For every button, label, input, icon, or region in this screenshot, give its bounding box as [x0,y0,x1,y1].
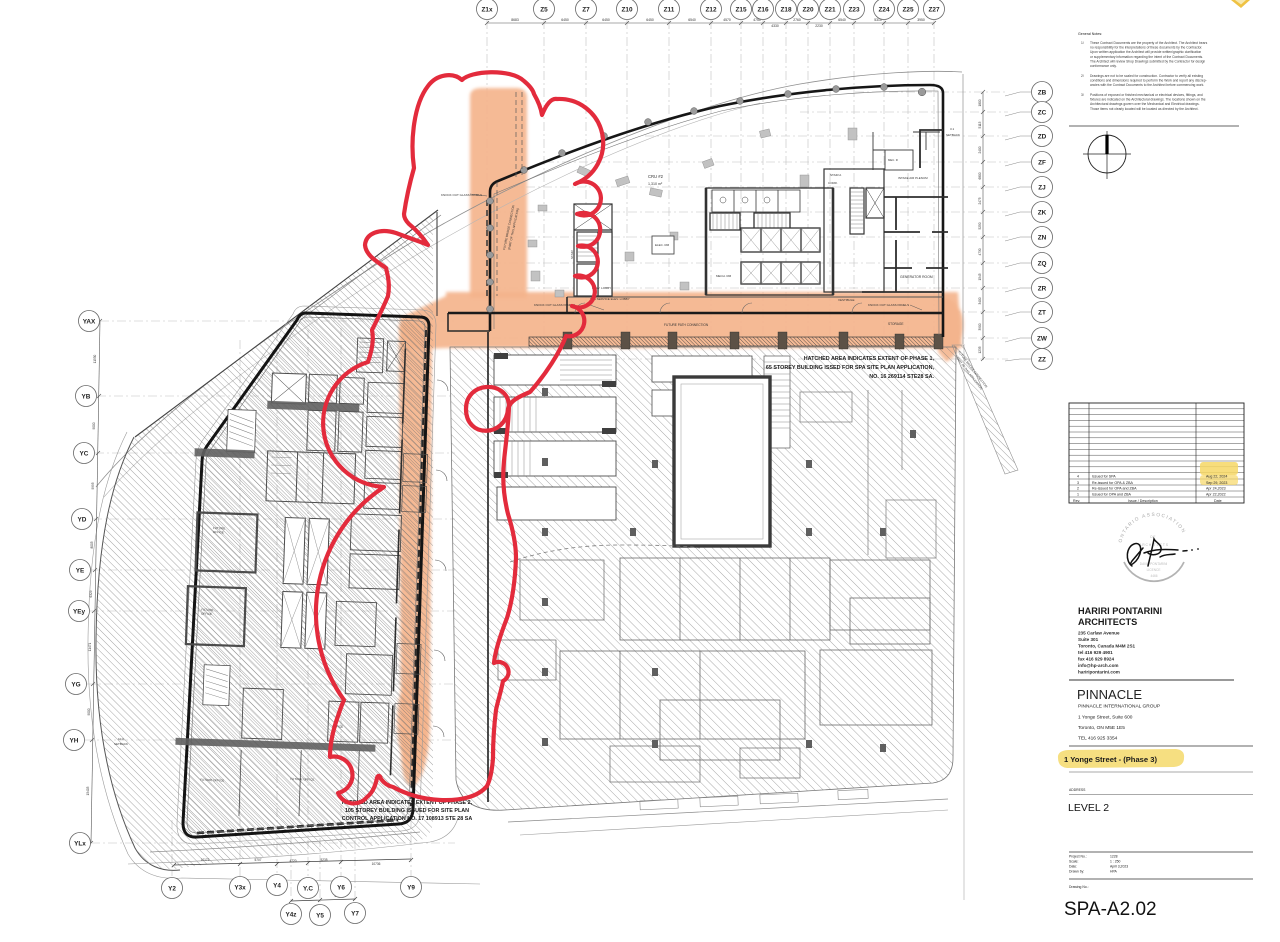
svg-text:Positions of exposed or finish: Positions of exposed or finished mechani… [1090,93,1203,97]
svg-text:6540: 6540 [688,18,696,22]
svg-text:8005: 8005 [90,541,94,548]
svg-text:4: 4 [1077,475,1079,479]
svg-text:4720: 4720 [289,859,296,863]
svg-text:ZR: ZR [1038,286,1047,293]
svg-text:ZN: ZN [1038,235,1047,242]
svg-text:Suite 301: Suite 301 [1078,637,1099,642]
svg-text:Z15: Z15 [735,7,746,14]
svg-text:Z7: Z7 [582,7,590,14]
svg-text:Z21: Z21 [824,7,835,14]
svg-text:fixtures are indicated on the: fixtures are indicated on the Architectu… [1090,98,1206,102]
svg-text:Toronto, Canada M4M 2S1: Toronto, Canada M4M 2S1 [1078,644,1136,649]
svg-text:Z10: Z10 [621,7,632,14]
svg-text:April 3,2023: April 3,2023 [1110,865,1128,869]
svg-text:or supplementary information r: or supplementary information regarding t… [1090,55,1203,59]
svg-text:YB: YB [82,394,91,401]
svg-text:8683: 8683 [511,18,519,22]
svg-text:Z24: Z24 [878,7,889,14]
svg-text:SETBACK: SETBACK [946,133,960,137]
svg-text:3950: 3950 [917,18,925,22]
svg-text:OFFICE: OFFICE [201,612,212,616]
svg-text:Z1x: Z1x [481,7,492,14]
svg-text:Issue / Description: Issue / Description [1128,499,1158,503]
svg-text:6450: 6450 [561,18,569,22]
svg-text:11530: 11530 [93,354,97,363]
svg-text:3400: 3400 [978,297,982,304]
svg-text:Issued for SPA: Issued for SPA [1092,475,1116,479]
svg-text:Those items not clearly locate: Those items not clearly located will be … [1090,107,1199,111]
svg-text:VESTIBULE: VESTIBULE [838,298,855,302]
svg-text:KNOCK OUT GLASS PANELS: KNOCK OUT GLASS PANELS [868,303,909,307]
svg-text:235 Carlaw Avenue: 235 Carlaw Avenue [1078,631,1120,636]
svg-text:2475: 2475 [978,197,982,204]
svg-text:TEL 416 925 3354: TEL 416 925 3354 [1078,736,1118,742]
svg-text:ZW: ZW [1037,336,1048,343]
svg-text:ZK: ZK [1038,210,1047,217]
svg-text:KNOCK OUT GLASS PANELS: KNOCK OUT GLASS PANELS [441,193,482,197]
svg-text:OFFICE: OFFICE [213,530,224,534]
svg-text:1,310 m²: 1,310 m² [648,182,663,186]
svg-text:Y6: Y6 [337,885,345,892]
svg-text:ZZ: ZZ [1038,357,1046,364]
svg-text:Date: Date [1214,499,1222,503]
svg-text:ZJ: ZJ [1038,185,1046,192]
svg-text:Y3x: Y3x [234,885,246,892]
svg-text:3900: 3900 [978,323,982,330]
svg-text:1 : 250: 1 : 250 [1110,860,1120,864]
svg-text:65 STOREY BUILDING ISSED FOR S: 65 STOREY BUILDING ISSED FOR SPA SITE PL… [766,365,935,371]
svg-text:2760: 2760 [793,18,801,22]
svg-text:3.1: 3.1 [950,127,955,131]
svg-text:YG: YG [71,682,80,689]
svg-text:INTAKE AIR PLENUM: INTAKE AIR PLENUM [898,176,928,180]
svg-text:HATCHED AREA INDICATES EXTENT: HATCHED AREA INDICATES EXTENT OF PHASE 1… [804,356,935,362]
svg-text:ELEC. RM: ELEC. RM [655,243,670,247]
svg-text:NO. 16 269114 STE28 SA.: NO. 16 269114 STE28 SA. [869,374,934,380]
svg-text:1/: 1/ [1081,41,1084,45]
svg-text:KNOCK OUT GLASS PANELS: KNOCK OUT GLASS PANELS [534,303,575,307]
svg-text:FUTURE OFFICE: FUTURE OFFICE [290,777,314,782]
svg-text:PINNACLE INTERNATIONAL GROUP: PINNACLE INTERNATIONAL GROUP [1078,704,1160,710]
svg-text:2400: 2400 [978,146,982,153]
svg-text:Upon written application the A: Upon written application the Architect w… [1090,50,1201,54]
svg-text:11471: 11471 [88,642,92,651]
svg-text:CRU #2: CRU #2 [648,174,664,179]
svg-text:ZF: ZF [1038,160,1046,167]
svg-text:Z25: Z25 [902,7,913,14]
svg-text:1545: 1545 [978,273,982,280]
svg-text:1800: 1800 [978,99,982,106]
svg-text:Re-issued for OPA and ZBA: Re-issued for OPA and ZBA [1092,487,1137,491]
svg-text:4730: 4730 [978,248,982,255]
svg-text:9995: 9995 [91,482,95,489]
svg-text:FUTURE OFFICE: FUTURE OFFICE [200,778,224,783]
svg-text:3/: 3/ [1081,93,1084,97]
svg-text:Z16: Z16 [757,7,768,14]
svg-text:Z18: Z18 [780,7,791,14]
svg-text:ZD: ZD [1038,134,1047,141]
svg-text:YC: YC [80,451,89,458]
svg-text:STAIR A: STAIR A [830,173,841,177]
svg-text:YH: YH [70,738,79,745]
svg-text:Z5: Z5 [540,7,548,14]
svg-text:YEy: YEy [73,609,86,616]
svg-text:1 Yonge Street, Suite 600: 1 Yonge Street, Suite 600 [1078,715,1133,721]
svg-text:FUTURE PATH CONNECTION: FUTURE PATH CONNECTION [664,323,709,327]
svg-text:hariripontarini.com: hariripontarini.com [1078,670,1120,675]
svg-text:conditions and dimensions requ: conditions and dimensions required to pe… [1090,79,1207,83]
svg-text:Y.C: Y.C [303,886,313,893]
svg-text:Re-issued for OPA & ZBA: Re-issued for OPA & ZBA [1092,481,1133,485]
svg-text:tel 416 929 4901: tel 416 929 4901 [1078,650,1113,655]
svg-text:Apr 22,2022: Apr 22,2022 [1206,493,1226,497]
svg-text:Z23: Z23 [848,7,859,14]
svg-text:Drawn by:: Drawn by: [1069,870,1084,874]
svg-text:MECH. RM: MECH. RM [716,274,732,278]
svg-text:HPA: HPA [1110,870,1117,874]
svg-text:Y5: Y5 [316,913,324,920]
svg-text:Issued for OPA and ZBA: Issued for OPA and ZBA [1092,493,1131,497]
svg-text:ZB: ZB [1038,90,1047,97]
svg-text:YAX: YAX [83,319,96,326]
svg-text:conformance only.: conformance only. [1090,64,1117,68]
svg-text:5235: 5235 [320,858,327,862]
svg-text:5250: 5250 [978,222,982,229]
svg-text:Drawing No.:: Drawing No.: [1069,885,1089,889]
svg-text:YE: YE [76,568,85,575]
svg-text:6450: 6450 [602,18,610,22]
svg-text:STORAGE: STORAGE [888,322,904,326]
svg-text:These Contract Documents are t: These Contract Documents are the propert… [1090,41,1208,45]
svg-text:Rev.: Rev. [1073,499,1080,503]
svg-text:ancies with the Contract Docum: ancies with the Contract Documents to th… [1090,83,1204,87]
svg-text:ARCHITECTS: ARCHITECTS [1078,617,1137,627]
svg-text:10173: 10173 [201,858,210,862]
svg-text:2: 2 [1077,487,1079,491]
svg-text:ZC: ZC [1038,110,1047,117]
svg-text:ZQ: ZQ [1038,261,1047,268]
svg-text:Z27: Z27 [928,7,939,14]
svg-text:HARIRI PONTARINI: HARIRI PONTARINI [1078,606,1162,616]
svg-text:Z12: Z12 [705,7,716,14]
svg-text:3: 3 [1077,481,1079,485]
svg-text:General Notes:: General Notes: [1078,32,1102,36]
svg-text:9000: 9000 [92,422,96,429]
svg-text:2230: 2230 [815,24,823,28]
svg-text:Architectural drawings govern: Architectural drawings govern over the M… [1090,102,1200,106]
svg-text:105 STOREY BUILDING ISSUED FOR: 105 STOREY BUILDING ISSUED FOR SITE PLAN [345,808,469,814]
svg-text:Y4z: Y4z [285,912,296,919]
svg-text:Drawings are not to be scaled: Drawings are not to be scaled for constr… [1090,74,1203,78]
svg-text:MEC. R: MEC. R [888,158,898,162]
svg-text:Toronto, ON M5E 1E5: Toronto, ON M5E 1E5 [1078,725,1125,731]
svg-text:10.0: 10.0 [118,737,124,741]
svg-text:9000: 9000 [87,708,91,715]
svg-text:6800: 6800 [978,172,982,179]
svg-text:1: 1 [1077,493,1079,497]
svg-text:Z11: Z11 [664,7,675,14]
svg-text:ADDRESS: ADDRESS [1069,788,1086,792]
svg-text:Z20: Z20 [802,7,813,14]
svg-text:fax 416 929 8924: fax 416 929 8924 [1078,657,1114,662]
svg-text:Y4: Y4 [273,883,281,890]
svg-text:Scale:: Scale: [1069,860,1078,864]
svg-text:4570: 4570 [723,18,731,22]
svg-text:CONTROL APPLICATION NO. 17 108: CONTROL APPLICATION NO. 17 108913 STE 28… [342,816,473,822]
svg-text:Sep 29, 2023: Sep 29, 2023 [1206,481,1227,485]
svg-text:4330: 4330 [771,24,779,28]
svg-text:info@hp-arch.com: info@hp-arch.com [1078,663,1118,668]
svg-text:CORR.: CORR. [828,181,838,185]
svg-text:LEVEL 2: LEVEL 2 [1068,802,1109,814]
svg-text:no responsibility for the inte: no responsibility for the interpretation… [1090,46,1203,50]
svg-text:5115: 5115 [978,121,982,128]
svg-text:The Architect will review Shop: The Architect will review Shop Drawings … [1090,59,1205,63]
svg-text:Y9: Y9 [407,885,415,892]
svg-text:6450: 6450 [646,18,654,22]
svg-text:5707: 5707 [254,858,261,862]
svg-text:15403: 15403 [86,786,90,795]
svg-text:ZT: ZT [1038,310,1046,317]
svg-text:2/: 2/ [1081,74,1084,78]
svg-text:6329: 6329 [89,590,93,597]
svg-text:PINNACLE: PINNACLE [1077,687,1142,702]
svg-text:YD: YD [78,517,87,524]
svg-text:1235: 1235 [978,346,982,353]
svg-text:STAIR: STAIR [570,250,574,259]
svg-text:Y2: Y2 [168,886,176,893]
svg-text:Apr 24,2023: Apr 24,2023 [1206,487,1226,491]
svg-text:10736: 10736 [372,862,381,866]
svg-text:1228: 1228 [1110,855,1118,859]
svg-text:Aug 22, 2024: Aug 22, 2024 [1206,475,1227,479]
svg-text:1 Yonge Street - (Phase 3): 1 Yonge Street - (Phase 3) [1064,755,1157,764]
svg-text:SPA-A2.02: SPA-A2.02 [1064,899,1157,920]
svg-text:Y7: Y7 [351,911,359,918]
svg-text:Project No.:: Project No.: [1069,855,1087,859]
svg-text:SETBACK: SETBACK [114,742,128,746]
svg-text:GENERATOR ROOM: GENERATOR ROOM [900,275,933,279]
svg-text:6540: 6540 [838,18,846,22]
svg-text:YLx: YLx [74,841,86,848]
svg-text:Date:: Date: [1069,865,1077,869]
